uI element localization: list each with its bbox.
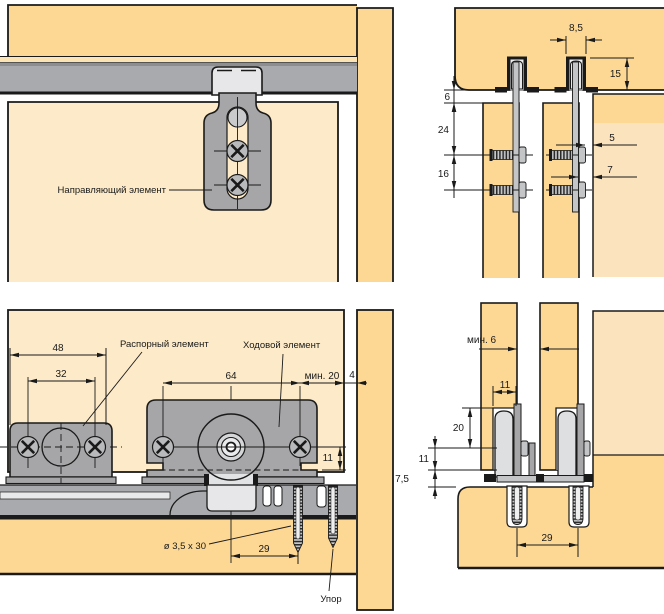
dim-48: 48 bbox=[52, 343, 64, 354]
sliding-door-hardware-diagram: Направляющий элемент bbox=[0, 0, 664, 614]
dim-6: 6 bbox=[444, 92, 450, 103]
stop-label: Упор bbox=[320, 594, 341, 605]
view-top-rail-elevation: Направляющий элемент bbox=[0, 5, 393, 282]
view-bottom-section: мин. 6 11 20 11 7,5 29 bbox=[395, 303, 664, 568]
side-wall-face bbox=[593, 123, 664, 277]
side-wall-bottom bbox=[357, 310, 393, 610]
dim-29-bottom-left: 29 bbox=[258, 544, 270, 555]
screw-size-label: ø 3,5 x 30 bbox=[164, 541, 206, 552]
top-panel-section bbox=[455, 8, 664, 90]
rail-fixing-strip bbox=[0, 57, 357, 63]
dim-5: 5 bbox=[609, 133, 615, 144]
guide-screw-bottom bbox=[227, 175, 248, 196]
dim-64: 64 bbox=[225, 371, 237, 382]
diagram-canvas: Направляющий элемент bbox=[0, 0, 664, 614]
side-wall-edge bbox=[593, 94, 664, 123]
bottom-panel-section bbox=[458, 487, 664, 568]
runner-glider bbox=[207, 485, 256, 511]
dim-24: 24 bbox=[438, 125, 450, 136]
side-wall-face-bottom bbox=[593, 311, 664, 455]
dim-min20: мин. 20 bbox=[305, 371, 340, 382]
dim-32: 32 bbox=[55, 369, 67, 380]
rail-screw-stop bbox=[329, 486, 338, 548]
top-rail bbox=[0, 63, 357, 92]
rail-screw-left bbox=[294, 486, 303, 553]
dim-4: 4 bbox=[349, 370, 355, 381]
spacer-element-label: Распорный элемент bbox=[120, 339, 209, 350]
view-bottom-rail-elevation: 48 32 64 мин. 20 4 11 29 Распорный элеме… bbox=[0, 310, 393, 610]
dim-29-bottom-right: 29 bbox=[541, 533, 553, 544]
dim-min6: мин. 6 bbox=[467, 335, 497, 346]
side-wall bbox=[357, 8, 393, 282]
top-panel bbox=[8, 5, 357, 57]
dim-16: 16 bbox=[438, 169, 450, 180]
dim-8-5: 8,5 bbox=[569, 23, 583, 34]
view-top-section: 8,5 15 6 24 16 5 7 bbox=[438, 8, 664, 278]
side-wall-edge-bottom bbox=[593, 455, 664, 487]
dim-11-section: 11 bbox=[419, 454, 430, 465]
guide-element bbox=[204, 67, 271, 210]
dim-15: 15 bbox=[610, 69, 622, 80]
guide-screw-top bbox=[227, 141, 248, 162]
anchor-screw-left bbox=[507, 486, 527, 527]
dim-20: 20 bbox=[453, 423, 465, 434]
dim-7: 7 bbox=[607, 165, 613, 176]
dim-11-groove: 11 bbox=[500, 380, 511, 391]
roller-right bbox=[558, 404, 590, 481]
roller-left bbox=[495, 404, 535, 481]
anchor-screw-right bbox=[569, 486, 589, 527]
runner-element-label: Ходовой элемент bbox=[243, 340, 321, 351]
dim-11-runner: 11 bbox=[323, 453, 334, 464]
guide-element-label: Направляющий элемент bbox=[58, 185, 167, 196]
dim-7-5: 7,5 bbox=[395, 474, 409, 485]
